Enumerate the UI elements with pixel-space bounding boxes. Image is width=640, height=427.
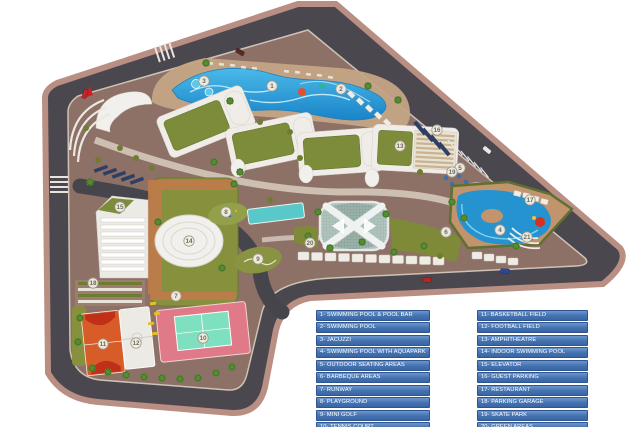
palm-tree bbox=[104, 368, 112, 376]
running-track bbox=[150, 292, 236, 300]
legend-item: 1- SWIMMING POOL & POOL BAR bbox=[316, 310, 430, 321]
plan-marker-19: 19 bbox=[447, 167, 457, 177]
legend-item: 10- TENNIS COURT bbox=[316, 422, 430, 427]
palm-tree bbox=[88, 364, 96, 372]
svg-text:9: 9 bbox=[256, 256, 260, 263]
svg-text:4: 4 bbox=[498, 227, 502, 234]
plan-marker-1: 1 bbox=[267, 81, 277, 91]
legend-column-right: 11- BASKETBALL FIELD12- FOOTBALL FIELD13… bbox=[477, 310, 588, 427]
svg-text:13: 13 bbox=[396, 143, 404, 150]
legend-item: 5- OUTDOOR SEATING AREAS bbox=[316, 360, 430, 371]
svg-text:6: 6 bbox=[444, 229, 448, 236]
car bbox=[500, 269, 509, 274]
car bbox=[422, 278, 431, 283]
svg-text:17: 17 bbox=[526, 197, 534, 204]
plan-marker-14: 14 bbox=[184, 236, 194, 246]
shrub bbox=[117, 145, 123, 151]
svg-text:10: 10 bbox=[199, 335, 207, 342]
legend-item: 19- SKATE PARK bbox=[477, 410, 588, 421]
jacuzzi-pool bbox=[205, 88, 213, 96]
palm-tree bbox=[158, 374, 166, 382]
palm-tree bbox=[210, 158, 218, 166]
svg-text:7: 7 bbox=[174, 293, 178, 300]
palm-tree bbox=[358, 238, 366, 246]
legend-column-left: 1- SWIMMING POOL & POOL BAR2- SWIMMING P… bbox=[316, 310, 430, 427]
plan-marker-9: 9 bbox=[253, 254, 263, 264]
lattice-dome bbox=[320, 202, 388, 250]
plan-marker-12: 12 bbox=[131, 338, 141, 348]
plan-marker-17: 17 bbox=[525, 195, 535, 205]
svg-text:11: 11 bbox=[100, 341, 107, 348]
svg-text:1: 1 bbox=[270, 83, 274, 90]
legend-item: 9- MINI GOLF bbox=[316, 410, 430, 421]
shrub bbox=[267, 197, 273, 203]
palm-tree bbox=[512, 242, 520, 250]
plan-marker-20: 20 bbox=[305, 238, 315, 248]
palm-tree bbox=[218, 264, 226, 272]
plan-marker-13: 13 bbox=[395, 141, 405, 151]
slide-tower bbox=[535, 217, 545, 227]
shrub bbox=[287, 129, 293, 135]
plan-marker-3: 3 bbox=[199, 76, 209, 86]
legend-item: 11- BASKETBALL FIELD bbox=[477, 310, 588, 321]
plan-marker-2: 2 bbox=[336, 84, 346, 94]
shrub bbox=[417, 169, 423, 175]
legend-item: 12- FOOTBALL FIELD bbox=[477, 322, 588, 333]
palm-tree bbox=[394, 96, 402, 104]
legend-item: 17- RESTAURANT bbox=[477, 385, 588, 396]
palm-tree bbox=[326, 244, 334, 252]
palm-tree bbox=[420, 242, 428, 250]
plan-marker-7: 7 bbox=[171, 291, 181, 301]
svg-text:18: 18 bbox=[89, 280, 97, 287]
svg-text:2: 2 bbox=[339, 86, 343, 93]
palm-tree bbox=[228, 363, 236, 371]
water-slide bbox=[298, 88, 306, 96]
plan-marker-4: 4 bbox=[495, 225, 505, 235]
palm-tree bbox=[236, 168, 244, 176]
palm-tree bbox=[122, 371, 130, 379]
palm-tree bbox=[194, 374, 202, 382]
shrub bbox=[437, 253, 443, 259]
palm-tree bbox=[314, 208, 322, 216]
palm-tree bbox=[140, 373, 148, 381]
svg-text:16: 16 bbox=[433, 127, 441, 134]
parking-garage-hedges bbox=[75, 280, 145, 306]
legend-item: 15- ELEVATOR bbox=[477, 360, 588, 371]
palm-tree bbox=[448, 198, 456, 206]
svg-text:8: 8 bbox=[224, 209, 228, 216]
palm-tree bbox=[460, 214, 468, 222]
svg-text:3: 3 bbox=[202, 78, 206, 85]
legend-item: 16- GUEST PARKING bbox=[477, 372, 588, 383]
palm-tree bbox=[382, 210, 390, 218]
legend-item: 4- SWIMMING POOL WITH AQUAPARK bbox=[316, 347, 430, 358]
svg-text:5: 5 bbox=[458, 165, 462, 172]
plan-marker-15: 15 bbox=[115, 202, 125, 212]
shrub bbox=[257, 119, 263, 125]
svg-text:21: 21 bbox=[523, 234, 531, 241]
legend-item: 14- INDOOR SWIMMING POOL bbox=[477, 347, 588, 358]
palm-tree bbox=[86, 178, 94, 186]
shrub bbox=[95, 157, 101, 163]
plan-marker-11: 11 bbox=[98, 339, 108, 349]
plan-marker-6: 6 bbox=[441, 227, 451, 237]
palm-tree bbox=[76, 314, 84, 322]
legend-item: 13- AMPHITHEATRE bbox=[477, 335, 588, 346]
plan-marker-21: 21 bbox=[522, 232, 532, 242]
palm-tree bbox=[212, 369, 220, 377]
pool-island bbox=[481, 209, 503, 223]
shrub bbox=[297, 155, 303, 161]
shrub bbox=[133, 155, 139, 161]
palm-tree bbox=[154, 218, 162, 226]
svg-text:14: 14 bbox=[185, 238, 193, 245]
legend-item: 7- RUNWAY bbox=[316, 385, 430, 396]
legend-item: 20- GREEN AREAS bbox=[477, 422, 588, 427]
legend-item: 6- BARBEQUE AREAS bbox=[316, 372, 430, 383]
site-plan-page: 123456789101112131415161718192021 1- SWI… bbox=[0, 0, 640, 427]
legend-item: 18- PARKING GARAGE bbox=[477, 397, 588, 408]
svg-text:19: 19 bbox=[448, 169, 456, 176]
palm-tree bbox=[176, 375, 184, 383]
palm-tree bbox=[74, 338, 82, 346]
shrub bbox=[149, 165, 155, 171]
water-slide bbox=[319, 83, 325, 89]
plan-marker-10: 10 bbox=[198, 333, 208, 343]
svg-text:20: 20 bbox=[306, 240, 314, 247]
svg-text:12: 12 bbox=[132, 340, 140, 347]
plan-marker-8: 8 bbox=[221, 207, 231, 217]
shrub bbox=[83, 125, 89, 131]
plan-marker-18: 18 bbox=[88, 278, 98, 288]
palm-tree bbox=[226, 97, 234, 105]
palm-tree bbox=[202, 59, 210, 67]
palm-tree bbox=[230, 180, 238, 188]
svg-text:15: 15 bbox=[116, 204, 124, 211]
palm-tree bbox=[364, 82, 372, 90]
tennis-court bbox=[156, 301, 251, 362]
palm-tree bbox=[390, 248, 398, 256]
legend-item: 8- PLAYGROUND bbox=[316, 397, 430, 408]
plan-marker-16: 16 bbox=[432, 125, 442, 135]
legend-item: 2- SWIMMING POOL bbox=[316, 322, 430, 333]
legend-item: 3- JACUZZI bbox=[316, 335, 430, 346]
